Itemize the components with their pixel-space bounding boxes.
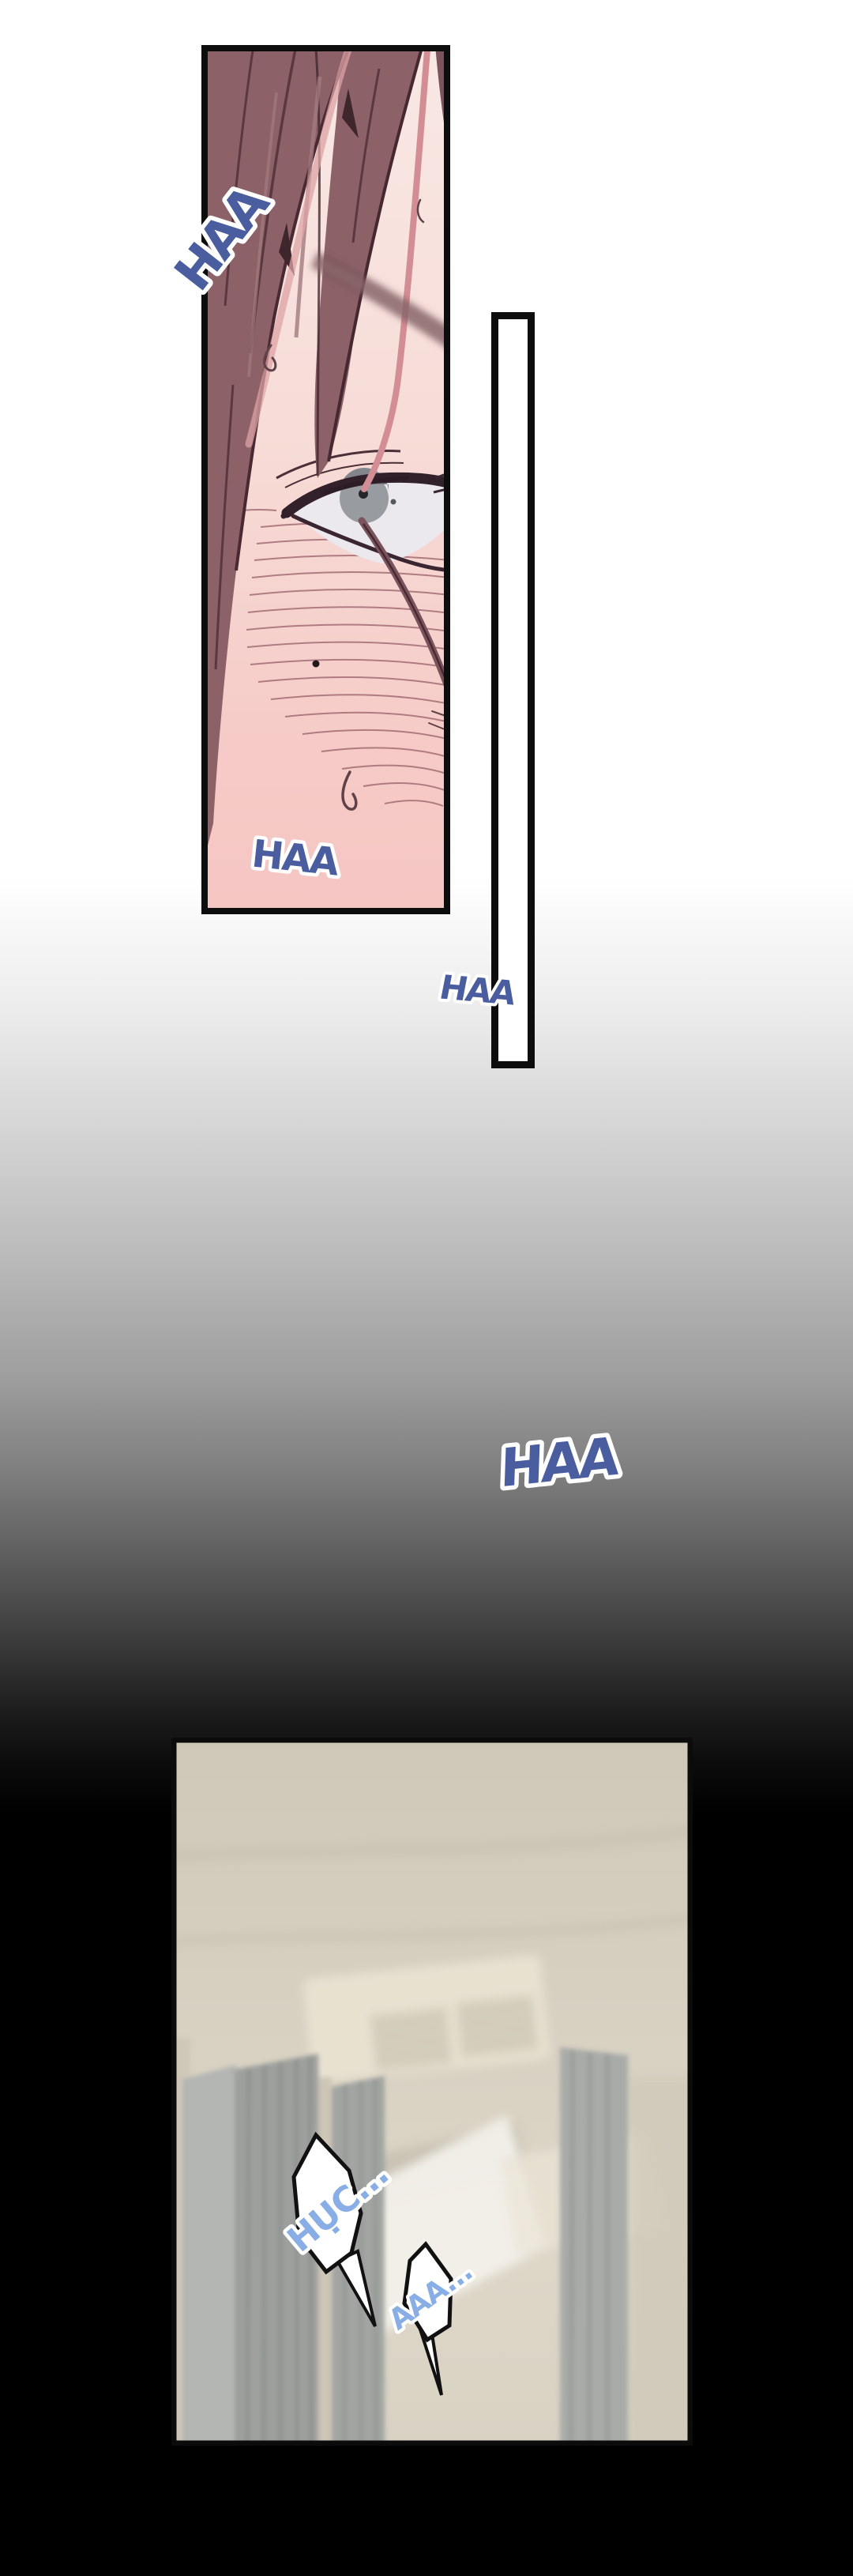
sfx-haa-dark-area-text: HAA — [499, 1425, 620, 1499]
sfx-haa-top: HAA — [150, 168, 292, 310]
webtoon-page: HAA HAA HAA HAA — [0, 0, 853, 2576]
sfx-haa-dark-area: HAA — [496, 1384, 642, 1538]
sfx-haa-beside-divider: HAA — [433, 947, 532, 1038]
sfx-haa-panel-bottom: HAA — [237, 814, 355, 905]
sfx-haa-panel-bottom-text: HAA — [250, 831, 341, 884]
room-ceiling-panel: HỤC... AAA... — [171, 1738, 693, 2446]
sfx-haa-beside-divider-text: HAA — [437, 968, 520, 1013]
sfx-haa-top-text: HAA — [163, 175, 281, 302]
beauty-mark — [313, 661, 320, 668]
